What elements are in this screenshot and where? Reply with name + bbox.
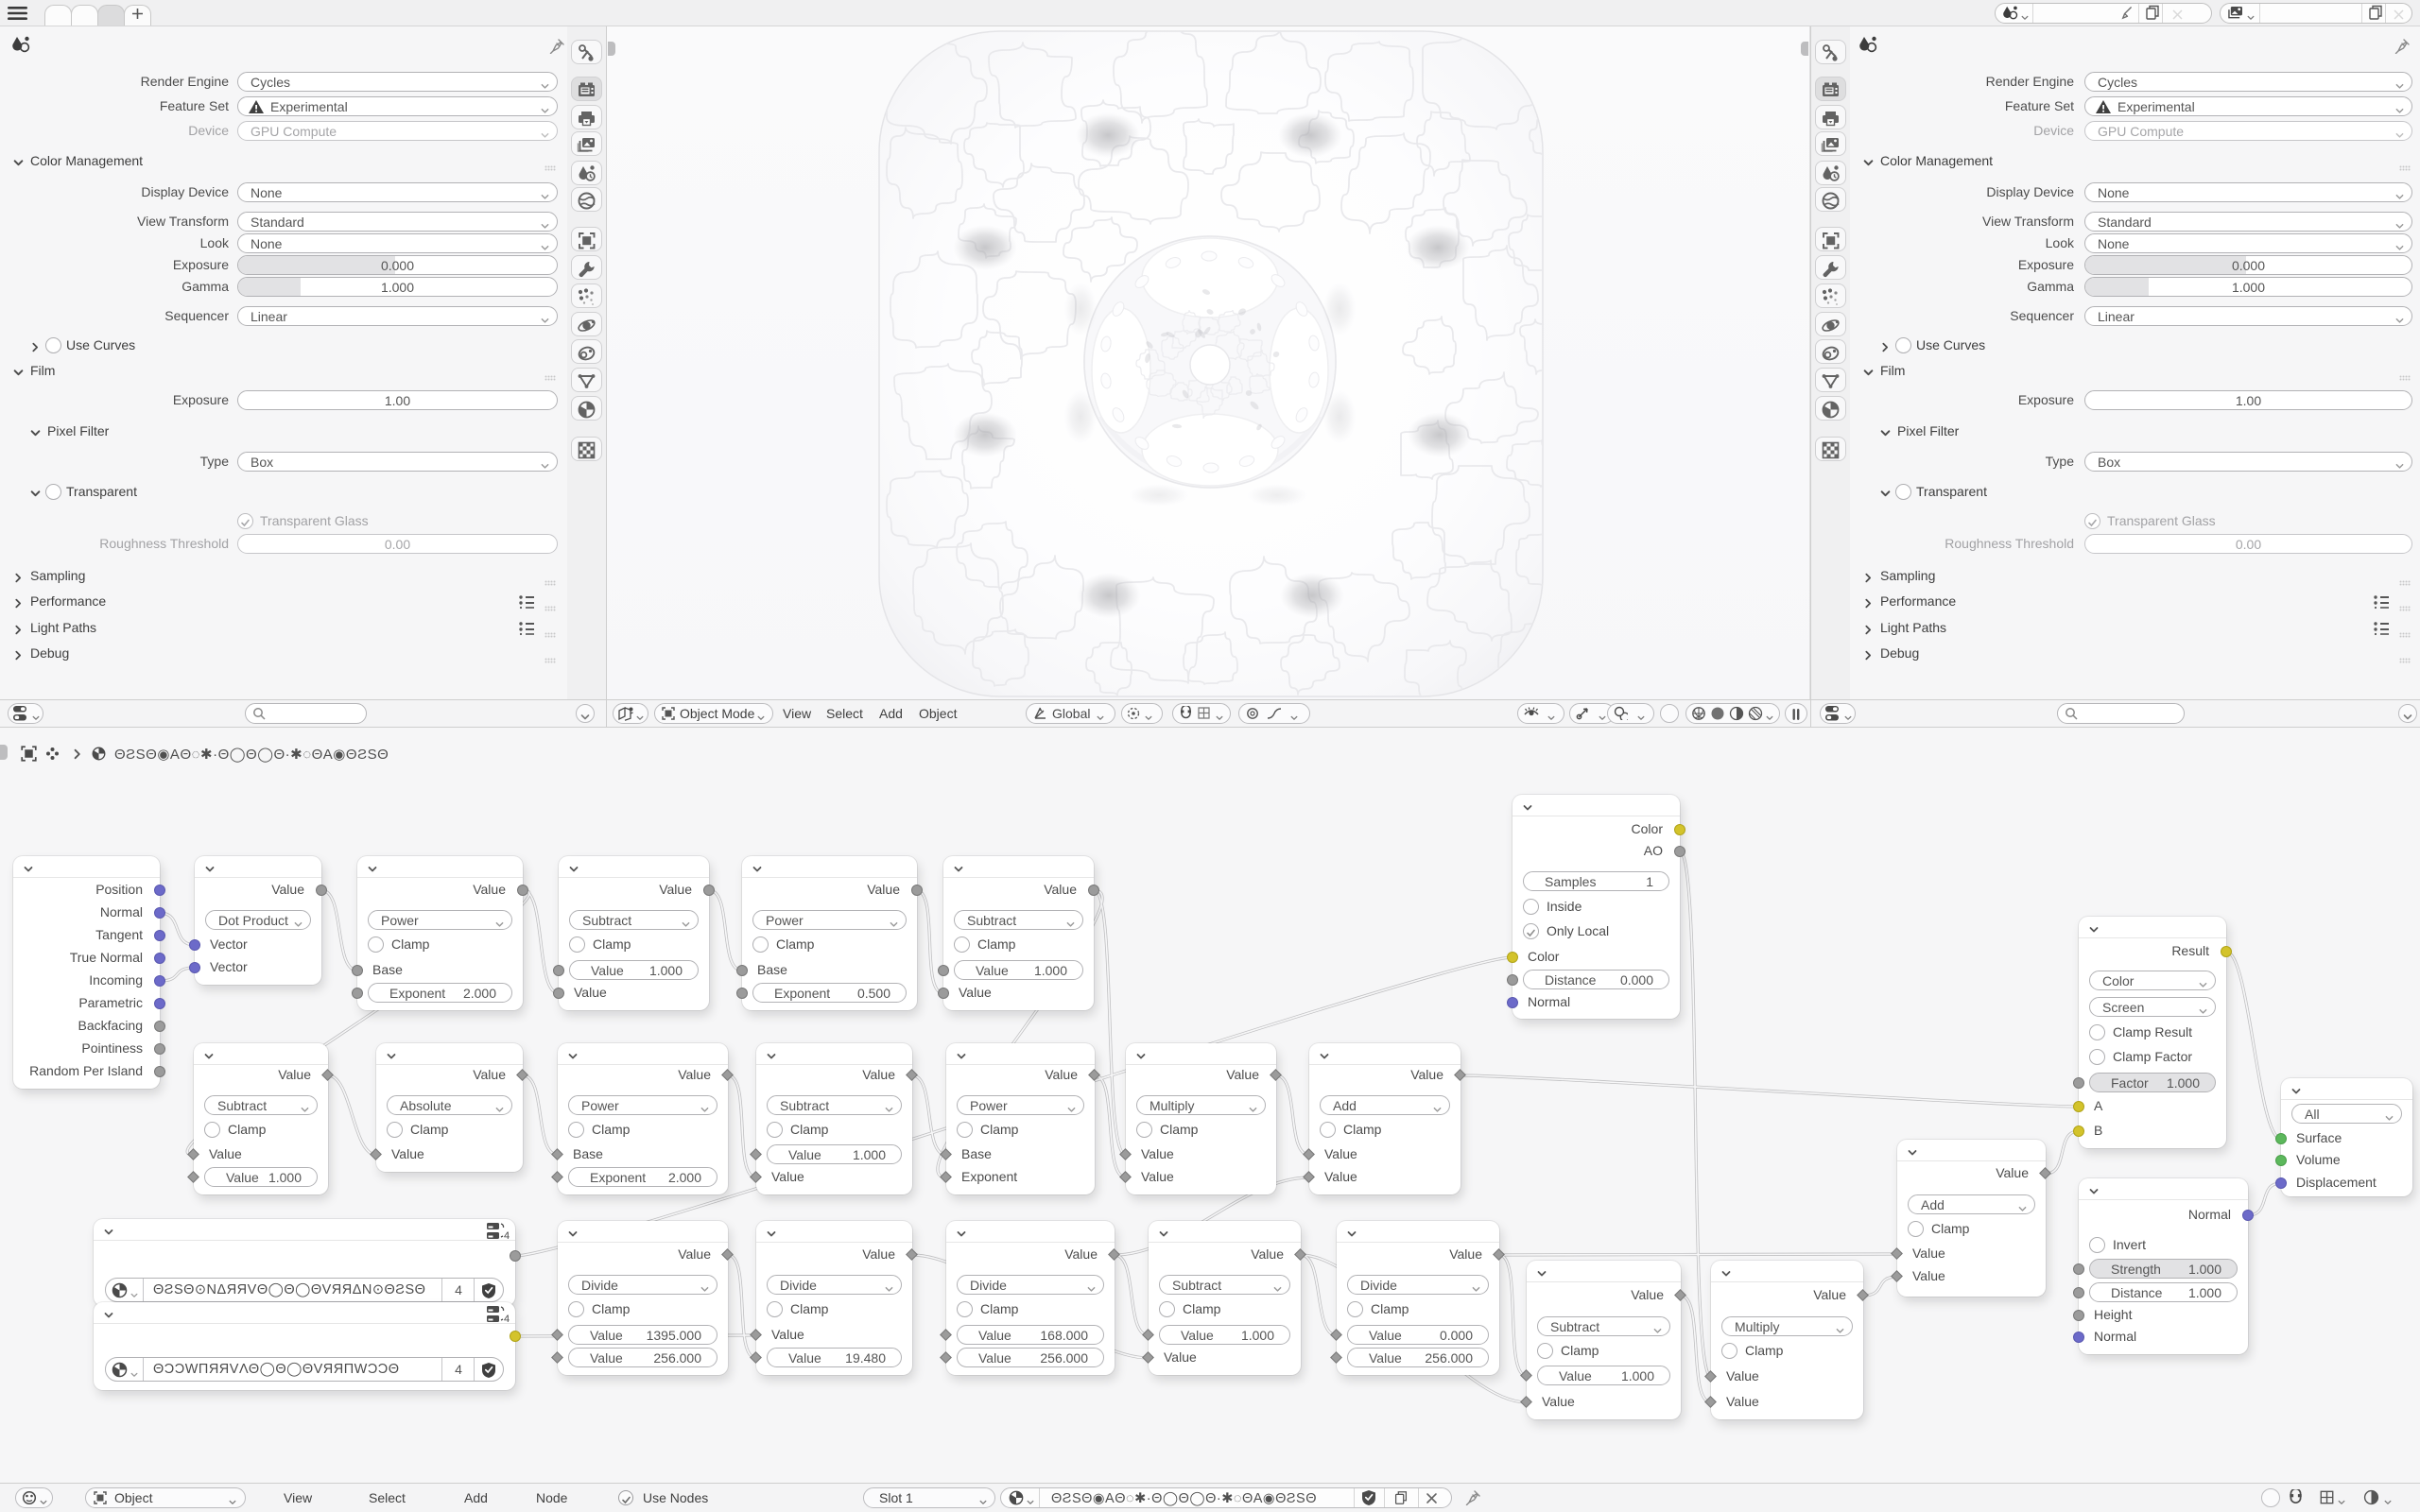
svg-text:4: 4 bbox=[504, 1314, 510, 1324]
svg-text:4: 4 bbox=[504, 1230, 510, 1241]
